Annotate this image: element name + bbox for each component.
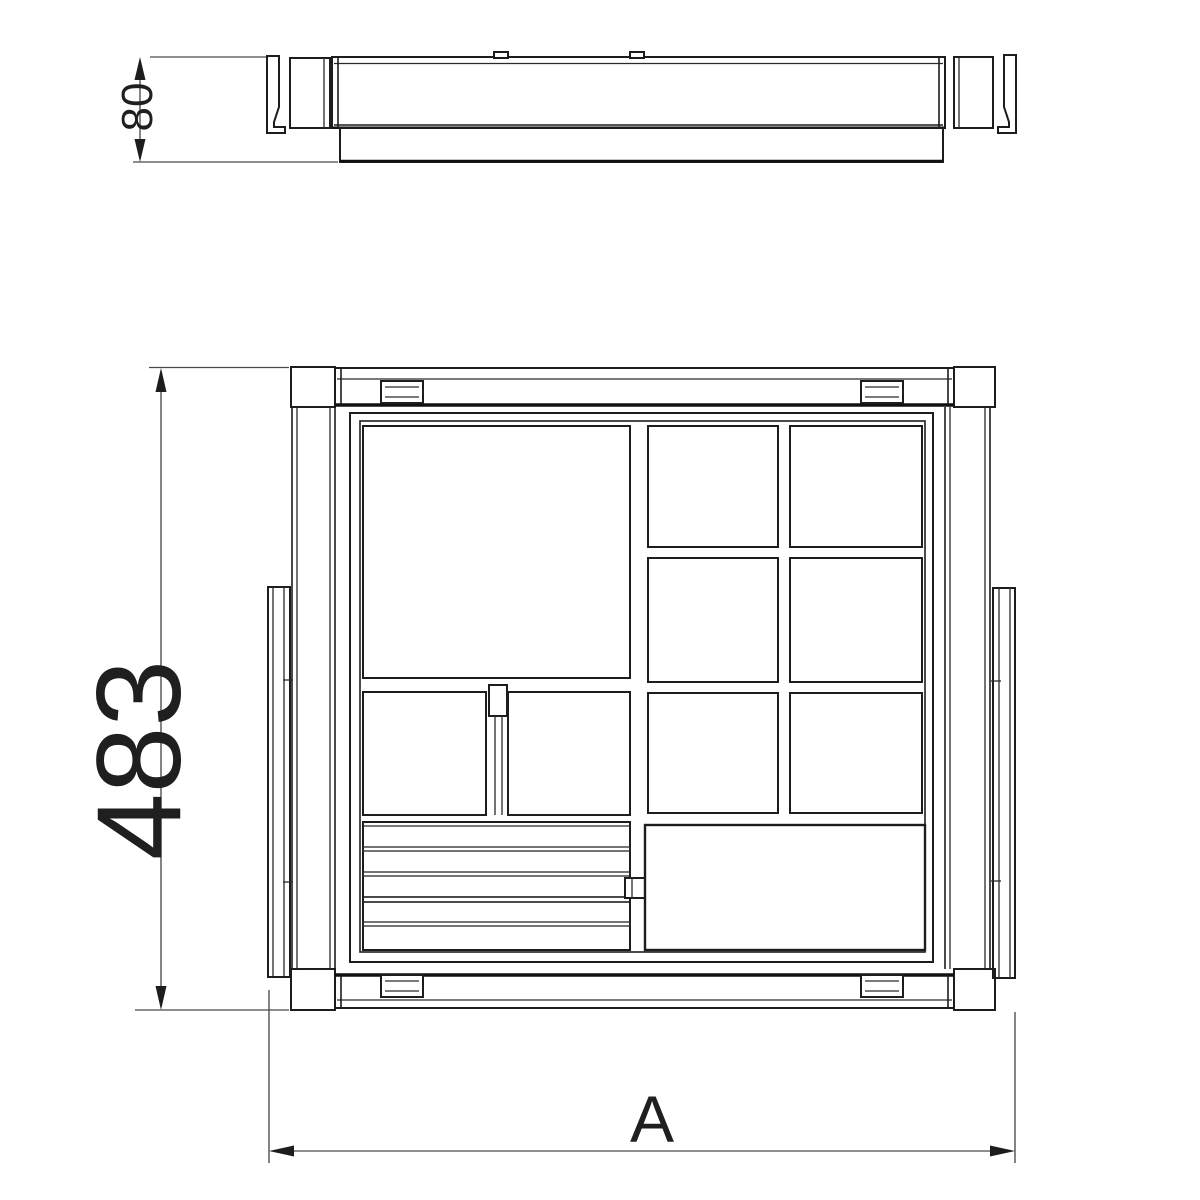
compartment-grid-r3c1 (648, 693, 778, 813)
compartment-grid-r1c2 (790, 426, 922, 547)
compartment-grid-r2c1 (648, 558, 778, 682)
compartment-grid-r1c1 (648, 426, 778, 547)
dim483-label: 483 (72, 660, 206, 860)
side-rail-top-tab-right (630, 52, 644, 58)
top-rail-clip-right (861, 381, 903, 403)
compartment-mid-left (363, 692, 486, 815)
compartment-large-bottom-right (645, 825, 925, 950)
bottom-rail-clip-right (861, 975, 903, 997)
compartment-grid-r2c2 (790, 558, 922, 682)
top-rail-clip-left (381, 381, 423, 403)
compartment-grid-r3c2 (790, 693, 922, 813)
bottom-rail-clip-left (381, 975, 423, 997)
dimA-label: A (630, 1082, 674, 1156)
dim80-label: 80 (113, 83, 162, 132)
side-rail-top-tab-left (494, 52, 508, 58)
technical-drawing-page: 80 (0, 0, 1200, 1200)
compartment-mid-center (508, 692, 630, 815)
divider-tab (489, 685, 507, 716)
drawing-svg: 80 (0, 0, 1200, 1200)
compartment-large-top-left (363, 426, 630, 678)
